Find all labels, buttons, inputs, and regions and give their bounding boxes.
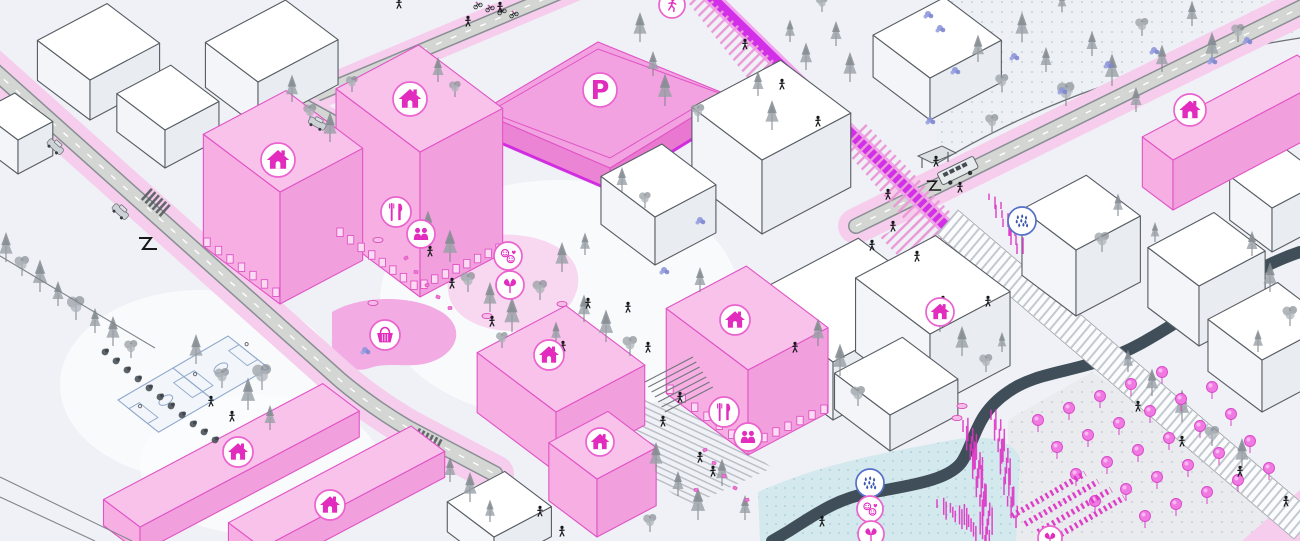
market-basket-icon [370, 320, 400, 350]
restaurant-icon-2 [709, 397, 739, 427]
raindrops-icon-2 [856, 469, 884, 497]
street-chair [722, 474, 726, 478]
housing-icon-i [1174, 94, 1206, 126]
housing-icon-d [534, 340, 564, 370]
masterplan-illustration: P [0, 0, 1300, 541]
raindrops-icon-1 [1008, 207, 1036, 235]
pedestrian-icon [659, 0, 685, 18]
cafe-table [373, 237, 383, 242]
happy-faces-icon-2 [857, 496, 883, 522]
cafe-table [957, 403, 967, 408]
community-icon-1 [407, 220, 435, 248]
housing-icon-a [261, 143, 295, 177]
parking-letter: P [591, 76, 610, 106]
greenery-icon-2 [858, 521, 884, 541]
happy-faces-icon-1 [494, 242, 522, 270]
housing-icon-h [315, 490, 345, 520]
street-chair [448, 306, 452, 309]
street-chair [712, 461, 717, 465]
restaurant-icon-1 [381, 197, 411, 227]
street-chair [425, 283, 430, 287]
housing-icon-w [926, 298, 954, 326]
cafe-table [557, 301, 567, 306]
community-icon-2 [734, 423, 762, 451]
masterplan-map: P [0, 0, 1300, 541]
street-chair [694, 488, 698, 491]
housing-icon-e [586, 428, 614, 456]
cafe-table [952, 415, 962, 420]
street-chair [414, 270, 418, 273]
greenery-icon-1 [496, 271, 524, 299]
housing-icon-f [720, 305, 750, 335]
housing-icon-b [393, 82, 427, 116]
parking-icon: P [583, 73, 617, 107]
housing-icon-g [223, 437, 253, 467]
cafe-table [368, 300, 378, 305]
